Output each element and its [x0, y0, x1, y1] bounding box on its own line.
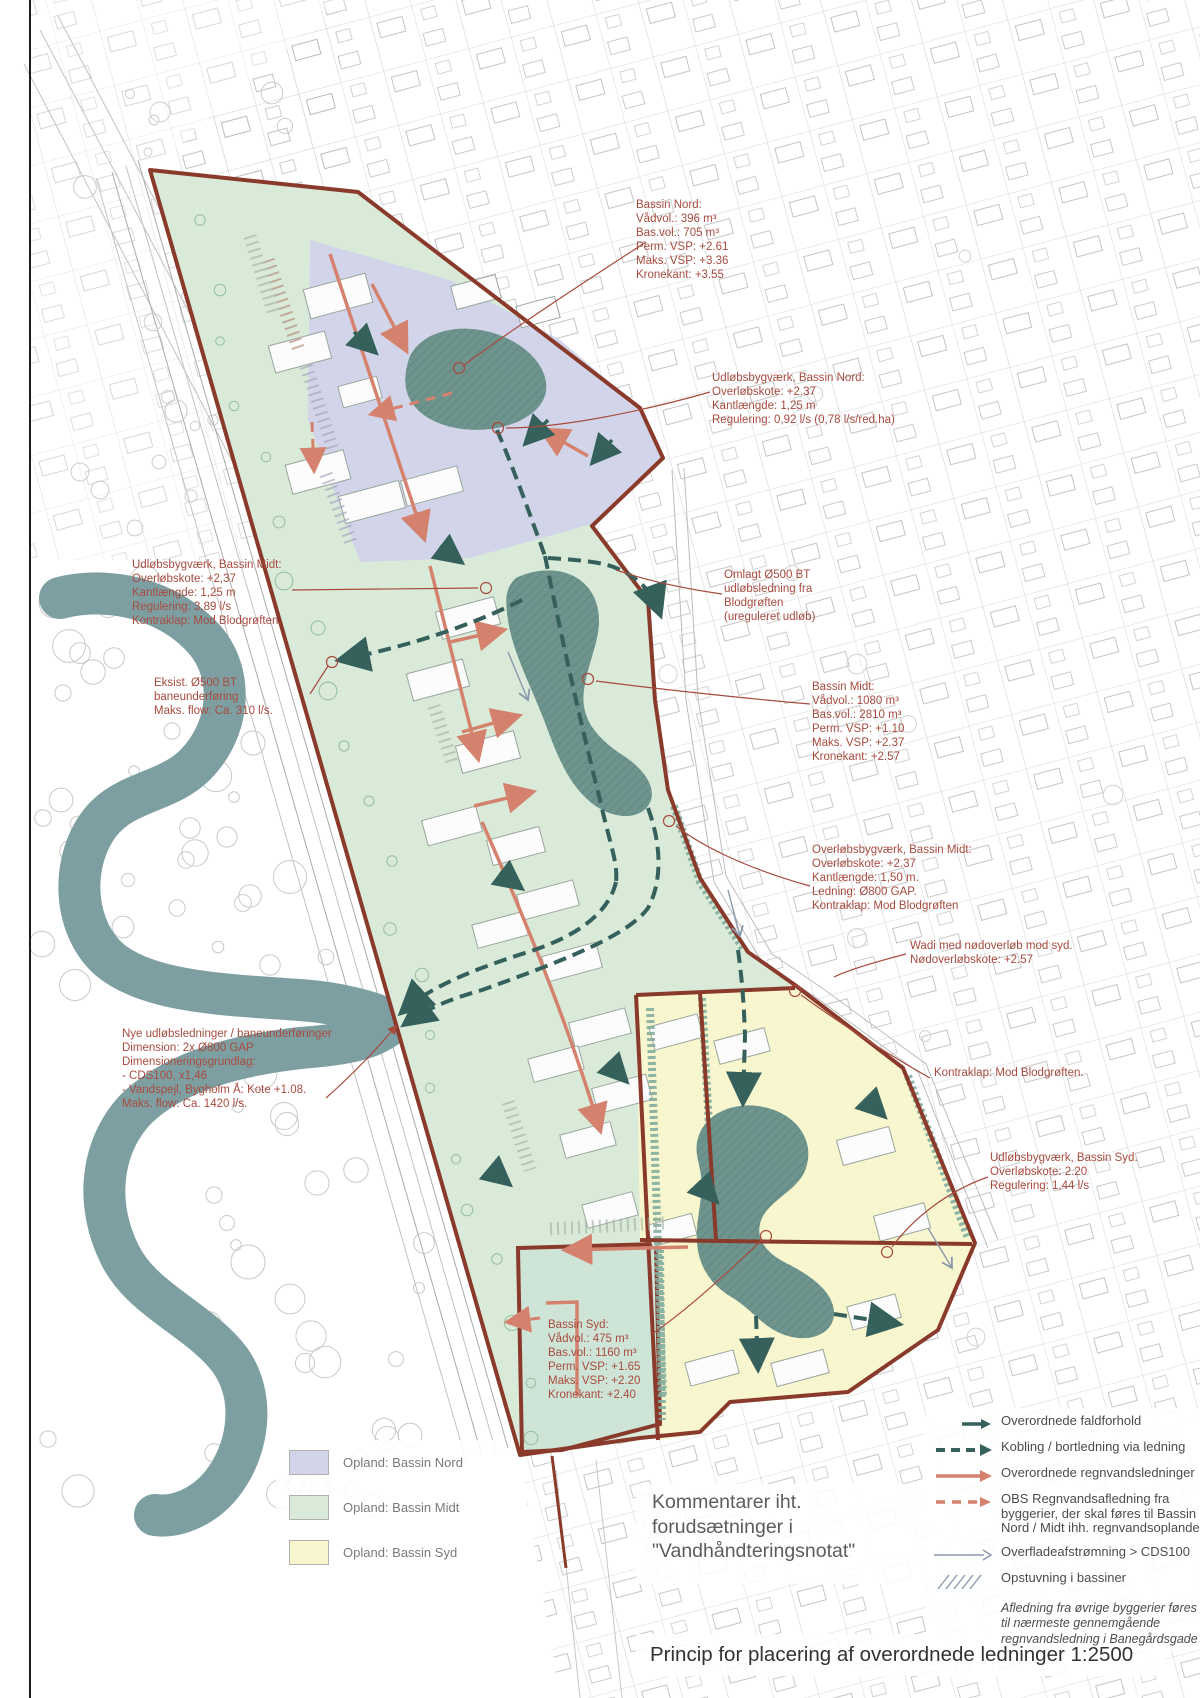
zone-syd-label: Opland: Bassin Syd [343, 1545, 457, 1560]
dashed-salmon-arrow-icon [934, 1493, 992, 1511]
comment-title: Kommentarer iht. forudsætninger i "Vandh… [652, 1490, 855, 1564]
legend-row-kobling: Kobling / bortledning via ledning [934, 1440, 1200, 1459]
zone-legend-row-midt: Opland: Bassin Midt [289, 1495, 463, 1520]
zone-midt-label: Opland: Bassin Midt [343, 1500, 459, 1515]
legend-label: Overordnede regnvandsledninger [1001, 1466, 1195, 1481]
annotation-wadi: Wadi med nødoverløb mod syd. Nødoverløbs… [910, 939, 1073, 967]
legend-label: Overordnede faldforhold [1001, 1414, 1141, 1429]
legend-row-overfladeafstroemning: Overfladeafstrømning > CDS100 [934, 1545, 1200, 1564]
site-plan-page: Bassin Nord: Vådvol.: 396 m³ Bas.vol.: 7… [0, 0, 1200, 1698]
symbol-legend: Overordnede faldforhold Kobling / bortle… [934, 1414, 1200, 1647]
hatch-icon [934, 1572, 992, 1592]
legend-row-faldforhold: Overordnede faldforhold [934, 1414, 1200, 1433]
zone-legend-row-nord: Opland: Bassin Nord [289, 1450, 463, 1475]
legend-label: OBS Regnvandsafledning fra byggerier, de… [1001, 1492, 1200, 1536]
annotation-bassin-syd: Bassin Syd: Vådvol.: 475 m³ Bas.vol.: 11… [548, 1318, 640, 1402]
annotation-udlobsbygvaerk-nord: Udløbsbygværk, Bassin Nord: Overløbskote… [712, 371, 895, 427]
legend-row-obs: OBS Regnvandsafledning fra byggerier, de… [934, 1492, 1200, 1536]
annotation-overlobsbygvaerk-midt: Overløbsbygværk, Bassin Midt: Overløbsko… [812, 843, 972, 913]
main-title: Princip for placering af overordnede led… [650, 1643, 1133, 1667]
annotation-udlobsbygvaerk-syd: Udløbsbygværk, Bassin Syd. Overløbskote:… [990, 1151, 1138, 1193]
zone-nord-swatch [289, 1450, 329, 1475]
legend-note: Afledning fra øvrige byggerier føres til… [1001, 1601, 1200, 1648]
legend-label: Opstuvning i bassiner [1001, 1571, 1126, 1586]
zone-nord-label: Opland: Bassin Nord [343, 1455, 463, 1470]
annotation-omlagt-udloebsledning: Omlagt Ø500 BT udløbsledning fra Blodgrø… [724, 568, 815, 624]
dashed-teal-arrow-icon [934, 1441, 992, 1459]
annotation-eksist-baneunderfoering: Eksist. Ø500 BT baneunderføring Maks. fl… [154, 676, 273, 718]
solid-teal-arrow-icon [934, 1415, 992, 1433]
annotation-kontraklap: Kontraklap: Mod Blodgrøften. [934, 1066, 1084, 1080]
zone-legend: Opland: Bassin Nord Opland: Bassin Midt … [289, 1450, 463, 1585]
legend-label: Kobling / bortledning via ledning [1001, 1440, 1185, 1455]
zone-midt-swatch [289, 1495, 329, 1520]
annotation-bassin-midt: Bassin Midt: Vådvol.: 1080 m³ Bas.vol.: … [812, 680, 904, 764]
zone-syd-swatch [289, 1540, 329, 1565]
annotation-nye-udloebsledninger: Nye udløbsledninger / baneunderføringer … [122, 1027, 332, 1111]
legend-row-opstuvning: Opstuvning i bassiner [934, 1571, 1200, 1592]
legend-row-regnvandsledninger: Overordnede regnvandsledninger [934, 1466, 1200, 1485]
page-frame-line [29, 0, 31, 1698]
zone-legend-row-syd: Opland: Bassin Syd [289, 1540, 463, 1565]
legend-label: Overfladeafstrømning > CDS100 [1001, 1545, 1190, 1560]
annotation-udlobsbygvaerk-midt: Udløbsbygværk, Bassin Midt: Overløbskote… [132, 558, 282, 628]
solid-salmon-arrow-icon [934, 1467, 992, 1485]
annotation-bassin-nord: Bassin Nord: Vådvol.: 396 m³ Bas.vol.: 7… [636, 198, 728, 282]
thin-gray-arrow-icon [934, 1546, 992, 1564]
